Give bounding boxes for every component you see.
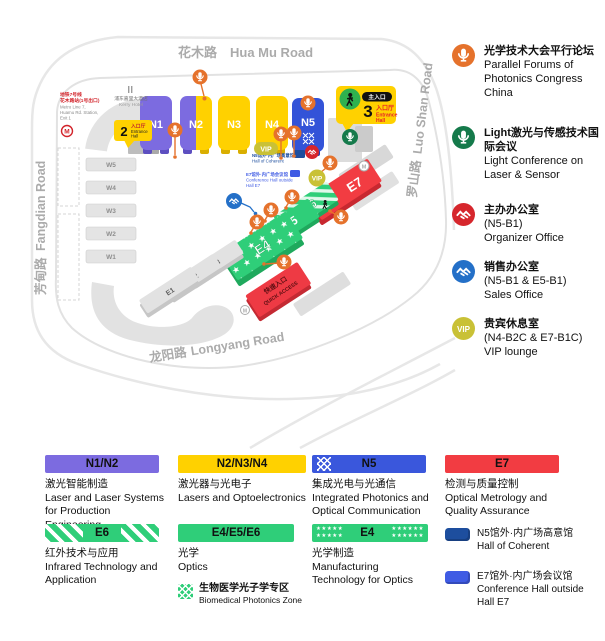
road-huamu-cn: 花木路 — [178, 45, 218, 60]
category-en: Lasers and Optoelectronics — [178, 492, 308, 506]
hall-w5-label: W5 — [106, 162, 116, 169]
hall-w3: W3 — [86, 204, 136, 217]
legend-item-location: (N4-B2C & E7-B1C) — [484, 331, 602, 345]
hall-w3-label: W3 — [106, 208, 116, 215]
legend-item-cn: 贵宾休息室 — [484, 317, 602, 331]
category-cn: 红外技术与应用 — [45, 547, 167, 561]
hall-w1: W1 — [86, 250, 136, 263]
category-en: Optical Metrology and Quality Assurance — [445, 492, 570, 519]
category-en: Integrated Photonics and Optical Communi… — [312, 492, 434, 519]
expo-map-page: 花木路 Hua Mu Road 罗山路 Luo Shan Road 芳甸路 Fa… — [0, 0, 605, 641]
category-en: Manufacturing Technology for Optics — [312, 561, 434, 588]
marker-conference-hall-e7: E7馆外·内广场会议馆 Conference Hall outside Hall… — [445, 570, 597, 609]
organizer-office-icon — [305, 145, 319, 159]
light-conference-mic-icon — [452, 126, 475, 149]
legend-item-en: Organizer Office — [484, 231, 602, 245]
star-pattern-right: ★★★★★★ ★★★★★★ — [391, 526, 424, 540]
category-bar-e4: ★★★★★ ★★★★★ E4 ★★★★★★ ★★★★★★ — [312, 524, 428, 542]
entrance2-en2: Hall — [131, 133, 138, 138]
m-marker-2-label: M — [243, 308, 247, 314]
category-bar-label: E4 — [360, 527, 374, 539]
category-bar-e6: E6 — [45, 524, 159, 542]
legend-item-en: Parallel Forums of Photonics Congress Ch… — [484, 58, 602, 100]
category-bar-label: E4/E5/E6 — [212, 527, 261, 539]
marker-cn: E7馆外·内广场会议馆 — [477, 570, 597, 583]
category-bar-n5: N5 — [312, 455, 426, 473]
organizer-handshake-icon — [452, 203, 475, 226]
venue-map: 花木路 Hua Mu Road 罗山路 Luo Shan Road 芳甸路 Fa… — [0, 0, 460, 452]
entrance3-main-label: 主入口 — [368, 93, 386, 101]
legend-item-location: (N5-B1) — [484, 217, 602, 231]
vip-icon-label: VIP — [457, 325, 471, 334]
category-e6: E6 红外技术与应用 Infrared Technology and Appli… — [45, 524, 167, 588]
road-label-fangdian: 芳甸路 Fangdian Road — [33, 161, 48, 295]
category-bar-label: N2/N3/N4 — [217, 458, 268, 470]
vip-pill-n4: VIP — [254, 142, 278, 155]
category-bar-n1n2: N1/N2 — [45, 455, 159, 473]
category-bar-label: N5 — [362, 458, 377, 470]
legend-light-conference: Light激光与传感技术国际会议 Light Conference on Las… — [452, 126, 602, 182]
biomedical-zone-item: 生物医学光子学专区 Biomedical Photonics Zone — [178, 583, 308, 606]
legend-sales-office: 销售办公室 (N5-B1 & E5-B1) Sales Office — [452, 260, 602, 302]
legend-item-location: (N5-B1 & E5-B1) — [484, 274, 602, 288]
star-pattern-left: ★★★★★ ★★★★★ — [316, 526, 343, 540]
hall-n5-label: N5 — [301, 117, 315, 129]
road-huamu-en: Hua Mu Road — [230, 45, 313, 60]
vip-icon: VIP — [452, 317, 475, 340]
legend-item-en: VIP lounge — [484, 345, 602, 359]
legend-vip-lounge: VIP 贵宾休息室 (N4-B2C & E7-B1C) VIP lounge — [452, 317, 602, 359]
category-en: Optics — [178, 561, 308, 575]
category-bar-label: N1/N2 — [86, 458, 119, 470]
entrance3-cn: 入口厅 — [375, 104, 394, 112]
metro-en2: Huamu Rd. Station, — [60, 110, 98, 115]
category-n5: N5 集成光电与光通信 Integrated Photonics and Opt… — [312, 455, 434, 519]
m-marker-1: M — [359, 161, 369, 171]
vip-pill-n4-label: VIP — [260, 147, 272, 154]
sales-office-icon — [226, 193, 242, 209]
legend-item-cn: 销售办公室 — [484, 260, 602, 274]
marker-en: Hall of Coherent — [477, 540, 597, 553]
legend-parallel-forums: 光学技术大会平行论坛 Parallel Forums of Photonics … — [452, 44, 602, 100]
hall-w4-label: W4 — [106, 185, 116, 192]
sales-handshake-icon — [452, 260, 475, 283]
biomedical-zone-en: Biomedical Photonics Zone — [199, 595, 302, 606]
metro-logo-m: M — [64, 129, 69, 136]
hall-w2-label: W2 — [106, 231, 116, 238]
metro-cn1: 地铁7号线 — [60, 91, 82, 98]
hotel-en: Kerry Hotel — [119, 102, 143, 108]
category-n1n2: N1/N2 激光智能制造 Laser and Laser Systems for… — [45, 455, 167, 533]
hall-n3-label: N3 — [227, 119, 241, 131]
category-bar-e7: E7 — [445, 455, 559, 473]
legend-item-en: Light Conference on Laser & Sensor — [484, 154, 602, 182]
category-cn: 光学制造 — [312, 547, 434, 561]
m-marker-2: M — [241, 306, 250, 315]
road-label-huamu: 花木路 Hua Mu Road — [178, 45, 313, 60]
coherent-marker-chip — [445, 528, 470, 541]
star-row: ★★★★★ — [316, 533, 343, 540]
hall-n2: N2 — [180, 96, 212, 154]
note-e7-en1: Conference Hall outside — [246, 178, 293, 183]
forum-mic-icon — [452, 44, 475, 67]
road-fangdian-en: Fangdian Road — [34, 161, 48, 251]
star-row: ★★★★★ — [316, 526, 343, 533]
metro-cn2: 花木路站(1号出口) — [60, 97, 100, 104]
legend-item-cn: 主办办公室 — [484, 203, 602, 217]
category-e4e5e6: E4/E5/E6 光学 Optics 生物医学光子学专区 Biomedical … — [178, 524, 308, 606]
marker-en: Conference Hall outside Hall E7 — [477, 583, 597, 609]
hotel-cn: 浦东嘉里大酒店 — [114, 95, 148, 102]
entrance3-number: 3 — [363, 102, 372, 121]
venue-map-svg: 花木路 Hua Mu Road 罗山路 Luo Shan Road 芳甸路 Fa… — [0, 0, 460, 452]
hall-w1-label: W1 — [106, 254, 116, 261]
category-cn: 激光器与光电子 — [178, 478, 308, 492]
light-conference-mic-icon — [342, 129, 358, 145]
hall-n3: N3 — [218, 96, 250, 154]
marker-cn: N5馆外·内广场高意馆 — [477, 527, 597, 540]
category-cn: 集成光电与光通信 — [312, 478, 434, 492]
e7-conference-marker-chip — [445, 571, 470, 584]
vip-circle-e7: VIP — [309, 170, 326, 187]
category-cn: 检测与质量控制 — [445, 478, 570, 492]
legend-item-en: Sales Office — [484, 288, 602, 302]
category-bar-e4e5e6: E4/E5/E6 — [178, 524, 294, 542]
biomedical-zone-cn: 生物医学光子学专区 — [199, 583, 302, 595]
category-cn: 激光智能制造 — [45, 478, 167, 492]
star-row: ★★★★★★ — [391, 533, 424, 540]
category-bar-n2n3n4: N2/N3/N4 — [178, 455, 306, 473]
marker-hall-of-coherent: N5馆外·内广场高意馆 Hall of Coherent — [445, 527, 597, 553]
category-bar-label: E7 — [495, 458, 509, 470]
hall-w2: W2 — [86, 227, 136, 240]
category-cn: 光学 — [178, 547, 308, 561]
vip-circle-e7-label: VIP — [312, 176, 323, 183]
legend-organizer-office: 主办办公室 (N5-B1) Organizer Office — [452, 203, 602, 245]
map-legend: 光学技术大会平行论坛 Parallel Forums of Photonics … — [452, 0, 604, 452]
legend-item-cn: Light激光与传感技术国际会议 — [484, 126, 602, 154]
crosshatch-pattern-icon — [317, 457, 331, 471]
biomedical-zone-icon — [178, 584, 193, 599]
hall-n2-label: N2 — [189, 119, 203, 131]
category-n2n3n4: N2/N3/N4 激光器与光电子 Lasers and Optoelectron… — [178, 455, 308, 505]
star-row: ★★★★★★ — [391, 526, 424, 533]
metro-en1: Metro Line 7, — [60, 105, 86, 110]
category-en: Infrared Technology and Application — [45, 561, 167, 588]
note-e7-en2: Hall E7 — [246, 183, 261, 188]
category-e4: ★★★★★ ★★★★★ E4 ★★★★★★ ★★★★★★ 光学制造 Manufa… — [312, 524, 434, 588]
road-fangdian-cn: 芳甸路 — [33, 257, 48, 295]
legend-item-cn: 光学技术大会平行论坛 — [484, 44, 602, 58]
entrance2-number: 2 — [120, 124, 127, 139]
m-marker-1-label: M — [362, 164, 367, 170]
category-bar-label: E6 — [83, 524, 121, 542]
note-coherent-en: Hall of Coherent — [252, 159, 285, 164]
entrance3-en2: Hall — [376, 118, 386, 124]
metro-en3: Exit 1 — [60, 116, 72, 121]
hall-w5: W5 — [86, 158, 136, 171]
category-e7: E7 检测与质量控制 Optical Metrology and Quality… — [445, 455, 570, 519]
hall-w4: W4 — [86, 181, 136, 194]
